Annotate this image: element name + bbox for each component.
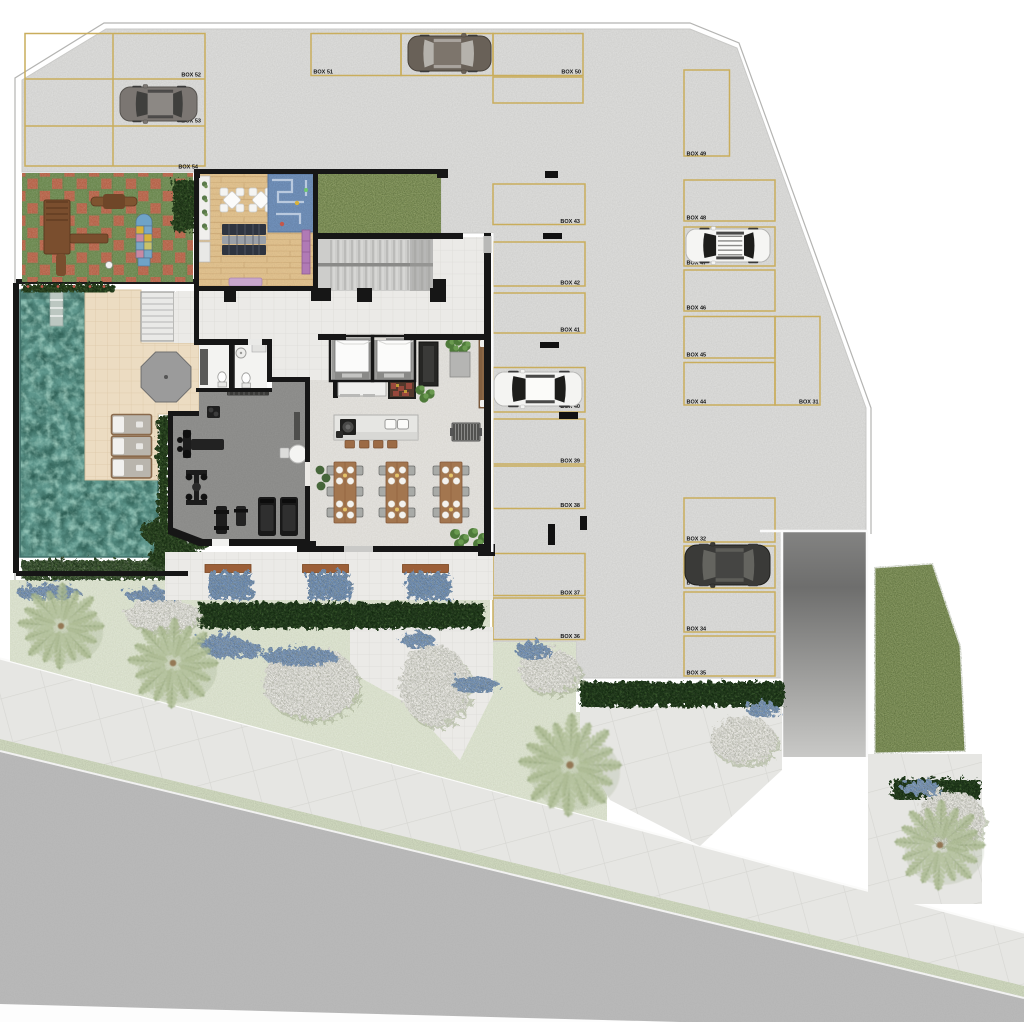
svg-text:BOX 34: BOX 34 — [687, 627, 708, 633]
svg-text:BOX 52: BOX 52 — [181, 73, 201, 79]
svg-text:BOX 35: BOX 35 — [687, 671, 707, 677]
svg-text:BOX 44: BOX 44 — [687, 400, 708, 406]
svg-text:BOX 43: BOX 43 — [560, 219, 580, 225]
svg-text:BOX 51: BOX 51 — [313, 70, 333, 76]
svg-text:BOX 31: BOX 31 — [799, 400, 819, 406]
svg-text:BOX 49: BOX 49 — [687, 152, 707, 158]
svg-text:BOX 42: BOX 42 — [560, 281, 580, 287]
svg-text:BOX 38: BOX 38 — [560, 503, 580, 509]
svg-text:BOX 46: BOX 46 — [687, 306, 707, 312]
svg-text:BOX 32: BOX 32 — [687, 537, 707, 543]
svg-text:BOX 50: BOX 50 — [561, 70, 581, 76]
svg-text:BOX 37: BOX 37 — [560, 591, 580, 597]
svg-text:BOX 41: BOX 41 — [560, 328, 580, 334]
svg-text:BOX 48: BOX 48 — [687, 216, 707, 222]
svg-text:BOX 39: BOX 39 — [560, 459, 580, 465]
svg-text:BOX 45: BOX 45 — [687, 353, 707, 359]
svg-text:BOX 36: BOX 36 — [560, 634, 580, 640]
